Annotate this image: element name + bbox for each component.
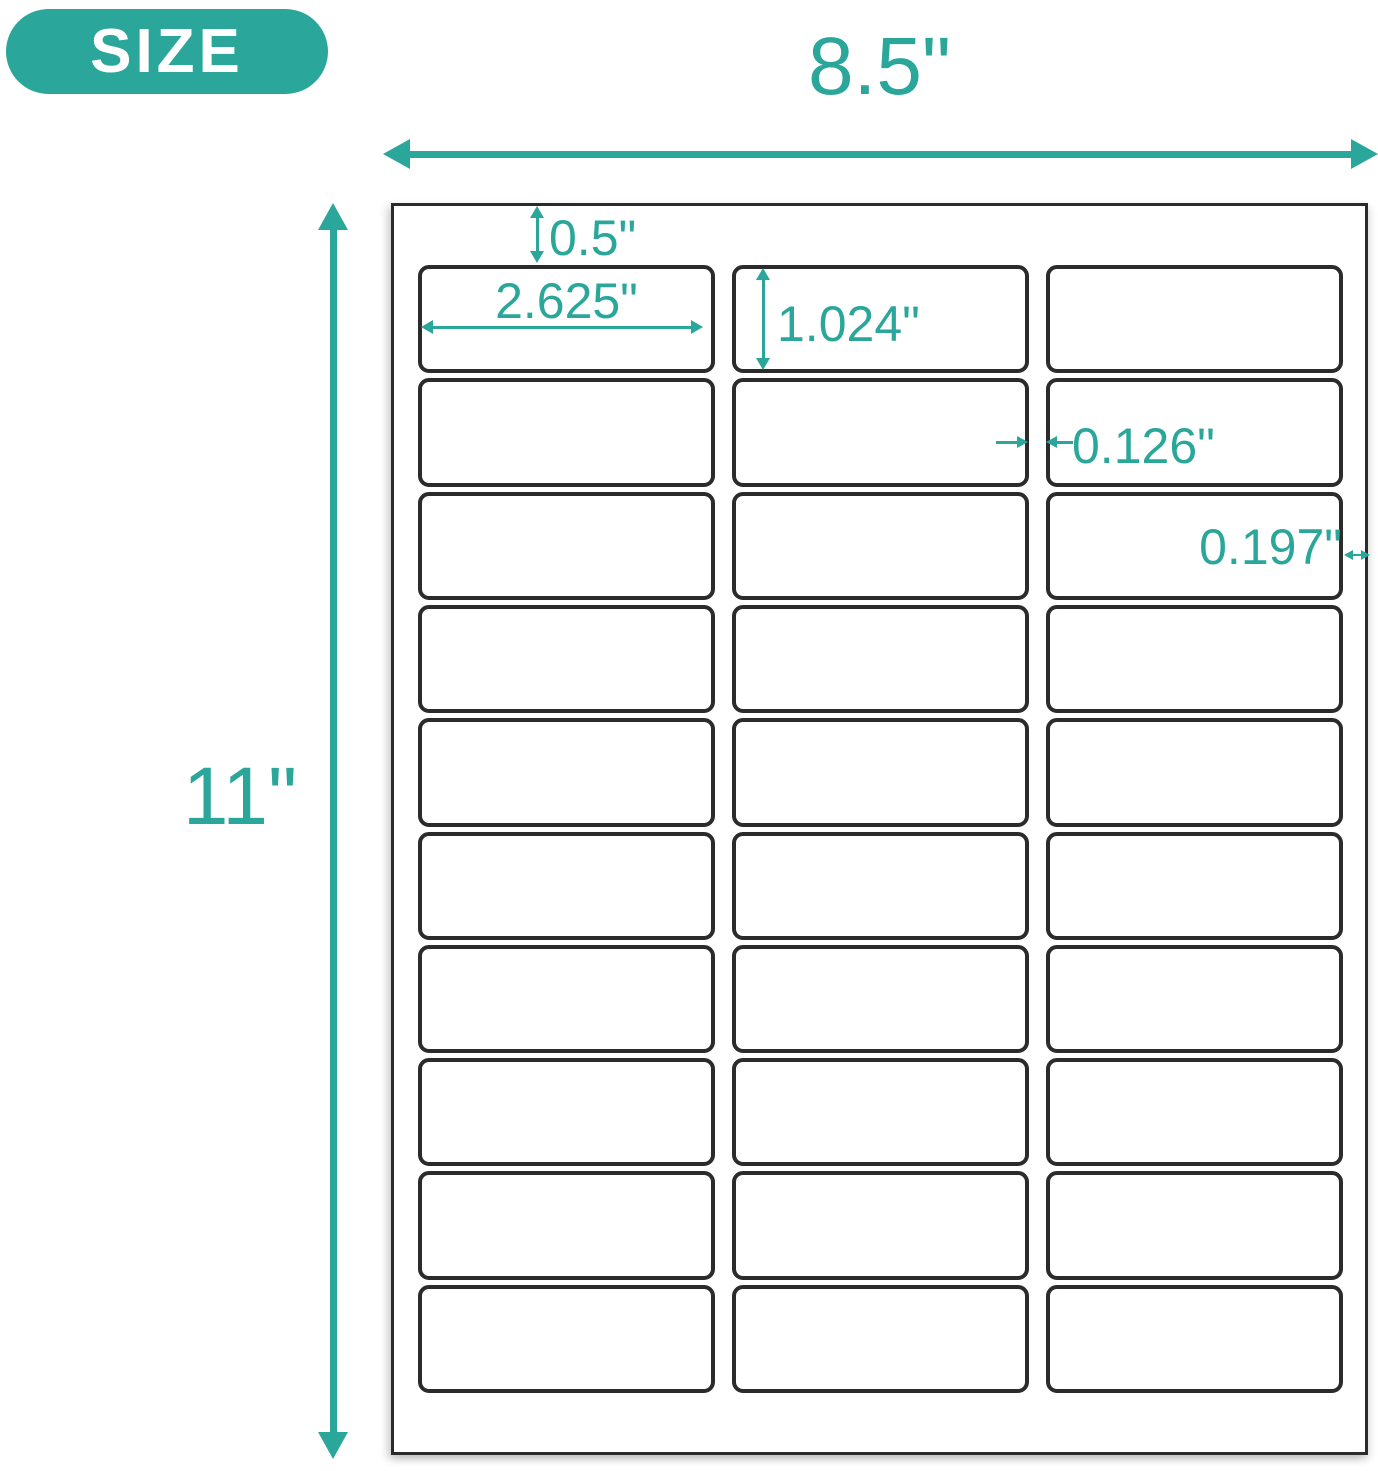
- label-cell: [1046, 1171, 1343, 1279]
- label-cell: [1046, 1285, 1343, 1393]
- label-height-value: 1.024": [777, 298, 920, 350]
- label-cell: [732, 1058, 1029, 1166]
- sheet-height-arrow-icon: [316, 203, 350, 1459]
- label-cell: [732, 832, 1029, 940]
- label-cell: [418, 1171, 715, 1279]
- column-gap-value: 0.126": [1072, 420, 1215, 472]
- label-cell: [1046, 1058, 1343, 1166]
- label-cell: [418, 832, 715, 940]
- label-cell: [1046, 945, 1343, 1053]
- label-cell: [418, 492, 715, 600]
- label-cell: [418, 718, 715, 826]
- label-cell: [732, 605, 1029, 713]
- label-width-arrow-icon: [421, 318, 703, 336]
- column-gap-left-arrow-icon: [1046, 434, 1073, 450]
- label-cell: [1046, 832, 1343, 940]
- top-margin-arrow-icon: [528, 206, 546, 263]
- label-cell: [1046, 605, 1343, 713]
- top-margin-value: 0.5": [549, 212, 636, 264]
- label-sheet-size-diagram: { "badge": { "label": "SIZE" }, "colors"…: [0, 0, 1378, 1471]
- label-cell: [418, 1285, 715, 1393]
- label-cell: [1046, 265, 1343, 373]
- label-cell: [418, 1058, 715, 1166]
- label-cell: [732, 1171, 1029, 1279]
- size-badge-label: SIZE: [90, 16, 244, 87]
- side-margin-value: 0.197": [1140, 521, 1342, 573]
- size-badge: SIZE: [6, 9, 328, 94]
- label-height-arrow-icon: [754, 268, 772, 370]
- label-cell: [418, 945, 715, 1053]
- label-cell: [1046, 718, 1343, 826]
- column-gap-right-arrow-icon: [996, 434, 1028, 450]
- label-cell: [732, 945, 1029, 1053]
- side-margin-arrow-icon: [1344, 546, 1370, 564]
- sheet-width-arrow-icon: [383, 137, 1378, 171]
- sheet-height-value: 11": [158, 756, 322, 838]
- sheet-width-value: 8.5": [391, 26, 1368, 108]
- label-cell: [732, 1285, 1029, 1393]
- label-cell: [732, 492, 1029, 600]
- label-cell: [418, 378, 715, 486]
- label-cell: [732, 378, 1029, 486]
- label-sheet: [391, 203, 1368, 1455]
- label-cell: [732, 718, 1029, 826]
- label-cell: [418, 605, 715, 713]
